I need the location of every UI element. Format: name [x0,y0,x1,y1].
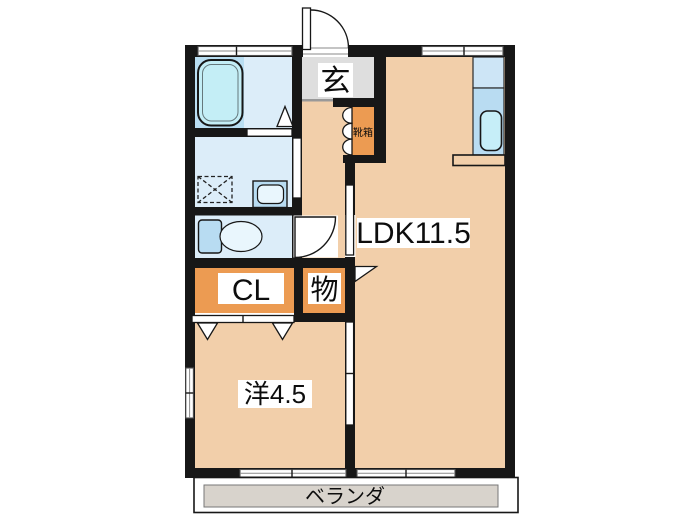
kitchen-upper-unit [473,57,504,88]
ldk-floor-main [355,163,505,468]
shoe-cabinet-accordion-door [343,108,352,155]
toilet-tank-icon [199,220,222,253]
wall-closet-divider [294,258,303,322]
ldk-sliding-door [346,185,354,255]
window-top-right [422,47,503,56]
wall-washroom-bottom [190,207,292,216]
wall-storage-bottom [303,313,345,322]
entrance-label: 玄 [321,65,351,98]
floor-plan-page: ベランダ 玄 靴箱 LDK11.5 CL 物 洋4.5 [0,0,700,525]
western-room-sliding-partition [346,322,354,425]
bath-sliding-door [247,129,292,136]
vanity-sink-icon [258,185,284,204]
storage-label: 物 [310,274,338,305]
western-room-label: 洋4.5 [244,379,306,409]
toilet-bowl-icon [220,222,262,252]
entrance-door-leaf [303,8,311,50]
window-left-western-room [186,368,194,418]
ldk-label: LDK11.5 [356,217,471,250]
shoe-cabinet-label: 靴箱 [353,126,373,139]
wall-shoebox-top [333,98,386,107]
window-top-left [198,47,292,56]
entrance-step-line [302,99,333,102]
bathtub-icon [198,60,243,126]
kitchen-sink-icon [481,111,502,151]
window-bottom-right [357,470,455,478]
wall-shoebox-bottom [343,155,386,163]
floor-plan-drawing: ベランダ 玄 靴箱 LDK11.5 CL 物 洋4.5 [0,0,700,525]
wall-right [505,45,515,478]
closet-label: CL [232,274,270,307]
wall-closet-top [185,258,355,268]
kitchen-counter [453,155,505,166]
washroom-sliding-door [293,138,301,198]
wall-bottom [185,468,515,478]
veranda: ベランダ [194,478,518,513]
window-bottom-left [240,470,346,478]
veranda-label: ベランダ [305,485,385,508]
